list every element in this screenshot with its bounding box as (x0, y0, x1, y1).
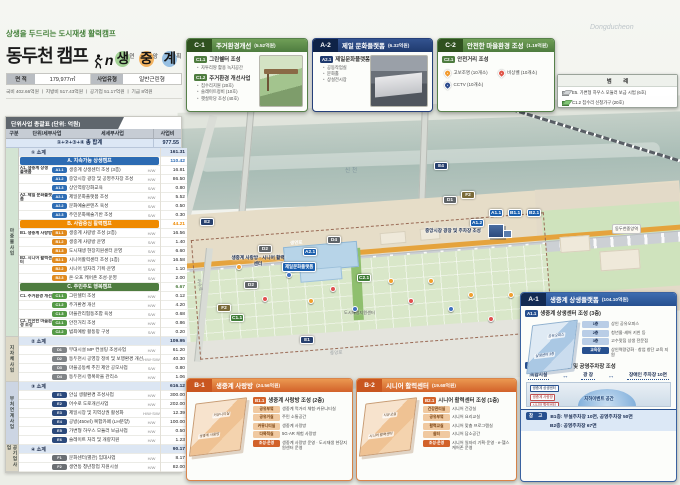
a1-amount: (104.10억원) (602, 296, 629, 303)
b1-body: 생중계 사랑방 커뮤니티실 B1.1생중계 사랑방 조성 (2층) 공유부엌 생… (187, 392, 352, 452)
row-text: 생중계 상생센터 조성 (3층) (69, 167, 143, 173)
a2-amount: (6.32억원) (388, 42, 409, 49)
a1-body: 상생센터 3층 공유오피스 1층 상인 공유오피스 2층 청년몰·셰어 키친 등 (521, 319, 676, 359)
row-text: ③ 소계 (19, 383, 160, 390)
culture-platform-photo (370, 55, 428, 107)
a1-plaza-strip: 복합시설 ↔ 광 장 ↔ 장애인 주차장 10면 (528, 372, 669, 380)
poi-pin-icon (448, 306, 454, 312)
poi-pin-icon (428, 278, 434, 284)
row-hw-sw: H/W (143, 375, 160, 380)
map-label: 동두천중앙역 (612, 224, 641, 234)
b2-sub1: B2.1시니어 활력센터 조성 (1층) (423, 396, 508, 404)
unit-project-table: 단위사업 총괄표 (단위: 억원) 구분 단위/세부사업 세세부사업 사업비 ①… (5, 116, 182, 473)
b2-title: 시니어 활력센터(19.68억원) (382, 379, 516, 392)
room-desc: 5G·AR 체험 사랑방 (282, 431, 348, 436)
safety-facility-label: 고보조명 (10개소) (454, 70, 488, 76)
row-cost: 2.00 (160, 274, 187, 283)
floor-badge: 3층 (582, 338, 609, 345)
map-pin-icon (443, 81, 452, 90)
room-badge: 조성·운영 (423, 440, 450, 447)
poi-pin-icon (330, 286, 336, 292)
b2-body: 시니어 활력센터 치유교실 B2.1시니어 활력센터 조성 (1층) 건강관리실… (357, 392, 516, 452)
c1-sub2-bullets: 집수리지원 (20호)슬레이트정비 (10호)햇살마당 조성 (40호) (190, 83, 258, 102)
map-label: 제일문화플랫폼 (282, 262, 316, 272)
a2-title-text: 제일 문화플랫폼 (342, 41, 385, 50)
row-text: 상인역량강화교육 (69, 185, 143, 191)
a1-title: 생중계 상생플랫폼(104.10억원) (546, 293, 676, 306)
row-badge: E5 (52, 428, 67, 434)
table-rows: ① 소계 161.31 A. 지속가능 상생캠프 110.42 A1. 생중 (19, 148, 187, 472)
row-text: 제일시장 및 지역상권 활성화 (69, 410, 143, 416)
row-cost: 0.68 (160, 310, 187, 319)
floor-row: 2층 청년몰·셰어 키친 등 (582, 330, 669, 337)
row-text: 생중계 사랑방 조성 (2층) (69, 230, 143, 236)
c2-title: 안전한 마을환경 조성(1.19억원) (463, 39, 554, 52)
side-group-label: 지자체사업 (6, 337, 18, 382)
row-cost: 40.30 (160, 355, 187, 364)
room-desc: 시니어 건강실 (452, 406, 512, 411)
arrow-icon: ↔ (608, 373, 615, 380)
row-hw-sw: H/W (143, 303, 160, 308)
row-hw-sw: H/W (143, 177, 160, 182)
area-label: 면 적 (7, 74, 35, 84)
row-cost: 82.00 (160, 463, 187, 472)
c2-header: C-2 안전한 마을환경 조성(1.19억원) (438, 39, 554, 52)
row-cost: 0.50 (160, 202, 187, 211)
render-chips: 생중계 상생센터 생중계 사랑방 시니어 활력센터 (530, 385, 559, 407)
note-text: B1층: 부설주차장 10면, 공영주차장 50면 (550, 413, 632, 420)
row-cost: 16.81 (160, 166, 187, 175)
c2-sub1: C2.1안전거리 조성 (442, 55, 550, 63)
map-marker: B2.1 (527, 209, 541, 217)
tagline: 상생을 두드리는 도시재생 활력캠프 (6, 28, 182, 39)
green-shelter-render-image (259, 55, 303, 107)
bullet: 자투리땅 활용 녹지공간 (201, 65, 258, 71)
sangseang-center-building-icon (488, 224, 504, 238)
b1-sub1: B1.1생중계 사랑방 조성 (2층) (253, 396, 344, 404)
row-cost: 0.30 (160, 211, 187, 220)
a1-note-2: B2층: 공영주차장 67면 (521, 422, 676, 431)
row-text: A. 지속가능 상생캠프 (20, 157, 159, 165)
row-cost: 90.17 (160, 445, 187, 454)
callout-c2-safe-environment: C-2 안전한 마을환경 조성(1.19억원) C2.1안전거리 조성 고보조명… (437, 38, 555, 112)
row-badge: E4 (52, 419, 67, 425)
floor-row: 1층 상인 공유오피스 (582, 321, 669, 328)
b1-plan-zone: 생중계 사랑방 커뮤니티실 (187, 392, 253, 452)
row-badge: F2 (52, 464, 67, 470)
room-badge: 쉼터 (423, 431, 450, 438)
row-text: 생연동 청년창업 지원시설 (69, 464, 143, 470)
map-marker: C2.1 (357, 274, 371, 282)
row-cost: 100.00 (160, 418, 187, 427)
a1-sub1-title: 생중계 상생센터 조성 (3층) (540, 309, 601, 317)
map-marker: E1 (300, 336, 314, 344)
floor-badge: 1층 (582, 321, 609, 328)
row-hw-sw: H/W (143, 420, 160, 425)
type-value: 일반근린형 (123, 74, 181, 84)
row-hw-sw: H/W (143, 465, 160, 470)
row-cost: 1.10 (160, 265, 187, 274)
map-marker: E2 (200, 218, 214, 226)
row-badge: B2.3 (52, 275, 67, 281)
bullet: 햇살마당 조성 (40호) (201, 96, 258, 102)
poi-pin-icon (308, 298, 314, 304)
row-text: 그린쉘터 조성 (69, 293, 143, 299)
b1-title-text: 생중계 사랑방 (216, 381, 253, 390)
floor-desc: 청년몰·셰어 키친 등 (611, 330, 669, 335)
runner-icon (92, 54, 103, 69)
b2-plan-zone: 시니어 활력센터 치유교실 (357, 392, 423, 452)
table-total-row: ①+②+③+④ 총 합계 977.55 (6, 139, 181, 148)
side-group-label: 부처연계사업 (6, 382, 18, 445)
a2-title: 제일 문화플랫폼(6.32억원) (338, 39, 432, 52)
row-cost: 110.42 (160, 157, 187, 166)
b2-code-badge: B-2 (357, 379, 382, 392)
map-marker: D1 (443, 196, 457, 204)
row-hw-sw: H/W (143, 438, 160, 443)
row-badge: C1.2 (52, 302, 67, 308)
b1-room-list: 공유부엌 생중계 먹거리 체험·커뮤니티실 공유거실 주민 소통공간 커뮤니티실… (253, 406, 348, 451)
row-group: C2. 안전한 마을환경 조성 (19, 319, 52, 328)
strip-item: 광 장 (581, 372, 595, 380)
room-row: 조성·운영 생중계 사랑방 운영 · 도시재생 현장지원센터 운영 (253, 440, 348, 451)
table-body: 마중물사업 지자체사업 부처연계사업 공기업사업 ① 소계 161.31 (6, 148, 181, 472)
b1-detail: B1.1생중계 사랑방 조성 (2층) 공유부엌 생중계 먹거리 체험·커뮤니티… (253, 392, 352, 452)
map-legend: 범 례 E5. 가변형 하우스 모듈러 보급 시범 (6호) C1.2 집수리 … (557, 74, 678, 108)
row-hw-sw: S/W (143, 312, 160, 317)
floor-badge: 2층 (582, 330, 609, 337)
title-accent-char: 생연 (115, 51, 130, 67)
poi-pin-icon (286, 272, 292, 278)
room-badge: 공유부엌 (423, 414, 450, 421)
callout-b2-senior-center: B-2 시니어 활력센터(19.68억원) 시니어 활력센터 치유교실 B2.1… (356, 378, 517, 481)
legend-item-label: E5. 가변형 하우스 모듈러 보급 시범 (6호) (572, 90, 646, 96)
map-marker: F2 (217, 304, 231, 312)
map-pin-icon (496, 68, 505, 77)
safety-facility-item: 고보조명 (10개소) (444, 70, 494, 77)
callout-c1-housing: C-1 주거환경개선(5.52억원) C1.1그린쉘터 조성 자투리땅 활용 녹… (186, 38, 308, 112)
room-row: 다목적실 5G·AR 체험 사랑방 (253, 431, 348, 438)
floor-desc: 상인역량강화 · 창업 창단 교육 지원 (611, 347, 669, 358)
c1-sub2-badge: C1.2 (194, 74, 207, 81)
row-text: ④ 소계 (19, 446, 160, 453)
room-row: 공유부엌 시니어 요리교실 (423, 414, 512, 421)
c2-code-badge: C-2 (438, 39, 463, 52)
a1-sub1: A1.1생중계 상생센터 조성 (3층) (525, 309, 672, 317)
row-hw-sw: S/W (143, 267, 160, 272)
row-hw-sw: S/W (143, 249, 160, 254)
row-text: B. 사람중심 활력캠프 (20, 220, 159, 228)
row-cost: 1.06 (160, 373, 187, 382)
room-desc: 주민 소통공간 (282, 414, 348, 419)
row-text: 어수로 도로개선사업 (69, 401, 143, 407)
b2-floor-plan: 시니어 활력센터 치유교실 (359, 397, 417, 457)
row-text: ① 소계 (19, 149, 160, 156)
map-shape-block (599, 249, 640, 272)
map-marker: D2 (258, 245, 272, 253)
row-cost: 0.80 (160, 364, 187, 373)
row-hw-sw: H/W (143, 294, 160, 299)
legend-item: E5. 가변형 하우스 모듈러 보급 시범 (6호) (558, 87, 677, 97)
row-cost: 86.50 (160, 175, 187, 184)
legend-items: E5. 가변형 하우스 모듈러 보급 시범 (6호) C1.2 집수리 신청가구… (558, 87, 677, 107)
logo-n: n (105, 52, 114, 68)
c2-sub1-badge: C2.1 (442, 56, 455, 63)
row-cost: 202.00 (160, 400, 187, 409)
c1-sub1-badge: C1.1 (194, 56, 207, 63)
c1-sub2-title: 주거환경 개선사업 (209, 74, 250, 82)
c2-sub1-title: 안전거리 조성 (457, 55, 488, 63)
building-icon (503, 230, 512, 238)
row-cost: 5.52 (160, 193, 187, 202)
row-cost: 4.20 (160, 301, 187, 310)
a2-bullets: 공동작업실문화홀상설전시장 (316, 65, 369, 84)
row-badge: A1.3 (52, 185, 67, 191)
floor-desc: 상인 공유오피스 (611, 321, 669, 326)
row-text: 안전거리 조성 (69, 320, 143, 326)
row-cost: 44.21 (160, 220, 187, 229)
table-column-header: 구분 단위/세부사업 세세부사업 사업비 (6, 129, 181, 139)
table-title: 단위사업 총괄표 (단위: 억원) (6, 117, 124, 129)
cube-icon (562, 101, 569, 106)
poi-pin-icon (388, 278, 394, 284)
poi-pin-icon (352, 306, 358, 312)
plan-room-label: 공유오피스 (547, 332, 566, 339)
room-desc: 시니어 일자리 기획·운영 · e-헬스케어존 운영 (452, 440, 512, 451)
poi-pin-icon (262, 296, 268, 302)
title-accent-chars: 생연 중앙 계획 (115, 50, 181, 68)
row-hw-sw: H/W (143, 231, 160, 236)
a1-note-1: 참 고 B1층: 부설주차장 10면, 공영주차장 50면 (521, 409, 676, 422)
col-unit-project: 단위/세부사업 (22, 129, 72, 138)
b2-room-list: 건강관리실 시니어 건강실 공유부엌 시니어 요리교실 활력교실 시니어 맞춤 … (423, 406, 512, 451)
b1-floor-plan: 생중계 사랑방 커뮤니티실 (189, 397, 247, 457)
row-group: B1. 생중계 사랑방 (19, 231, 52, 235)
bullet: 상설전시장 (327, 77, 369, 83)
row-cost: 0.86 (160, 319, 187, 328)
title-row: 동두천 캠프 n 생연 중앙 계획 (6, 42, 182, 68)
map-marker: B1.1 (508, 209, 522, 217)
room-badge: 건강관리실 (423, 406, 450, 413)
map-marker: A1.1 (489, 209, 503, 217)
row-hw-sw: H/W (143, 402, 160, 407)
row-badge: E3 (52, 410, 67, 416)
a2-sub1-badge: A2.1 (320, 56, 333, 63)
safety-facility-label: CCTV (10개소) (454, 82, 484, 88)
room-badge: 활력교실 (423, 423, 450, 430)
floor-row: 3층 고수맛집 상생 전문점 (582, 338, 669, 345)
row-text: 주거환경 개선 (69, 302, 143, 308)
note-text: B2층: 공영주차장 67면 (550, 422, 597, 429)
room-desc: 생중계 사랑방 (282, 423, 348, 428)
poi-pin-icon (408, 298, 414, 304)
row-badge: A1.2 (52, 176, 67, 182)
map-marker: D2 (244, 281, 258, 289)
b2-sub1-title: 시니어 활력센터 조성 (1층) (438, 396, 499, 404)
row-badge: B1.2 (52, 239, 67, 245)
row-cost: 16.58 (160, 256, 187, 265)
render-chip-label: 시니어 활력센터 (530, 402, 559, 407)
room-badge: 공유거실 (253, 414, 280, 421)
row-text: 마을관리협동조합 육성 (69, 311, 143, 317)
map-marker: F2 (461, 191, 475, 199)
row-badge: A2.2 (52, 203, 67, 209)
b2-title-text: 시니어 활력센터 (386, 381, 429, 390)
row-text: 제일문화플랫폼 조성 (69, 194, 143, 200)
floor-badge: 교육장 (582, 347, 609, 354)
map-label: 도시재생지원센터 (344, 310, 375, 316)
a1-code-badge: A-1 (521, 293, 546, 306)
col-sub-project: 세세부사업 (72, 129, 153, 138)
row-hw-sw: S/W (143, 276, 160, 281)
row-hw-sw: H/W (143, 429, 160, 434)
row-badge: C1.3 (52, 311, 67, 317)
row-hw-sw: H/W (143, 456, 160, 461)
callout-a1-sangseang-platform: A-1 생중계 상생플랫폼(104.10억원) A1.1생중계 상생센터 조성 … (520, 292, 677, 482)
row-badge: E6 (52, 437, 67, 443)
row-badge: B2.1 (52, 257, 67, 263)
side-group-label: 공기업사업 (6, 445, 18, 472)
plan-room-label: 상생센터 3층 (534, 351, 556, 359)
row-cost: 8.17 (160, 454, 187, 463)
row-text: 공방(450㎡) 복합카페 (LH분양) (69, 419, 143, 425)
row-badge: D2 (52, 356, 67, 362)
row-badge: D1 (52, 347, 67, 353)
room-row: 건강관리실 시니어 건강실 (423, 406, 512, 413)
room-badge: 공유부엌 (253, 406, 280, 413)
row-badge: D4 (52, 374, 67, 380)
room-row: 공유거실 주민 소통공간 (253, 414, 348, 421)
a1-sub1-badge: A1.1 (525, 310, 538, 317)
c2-title-text: 안전한 마을환경 조성 (467, 41, 523, 50)
room-row: 공유부엌 생중계 먹거리 체험·커뮤니티실 (253, 406, 348, 413)
map-label: 중앙로 (330, 350, 343, 357)
map-marker: E4 (434, 162, 448, 170)
b1-sub1-badge: B1.1 (253, 397, 266, 404)
row-badge: E2 (52, 401, 67, 407)
row-group: C1. 주거환경 개선 (19, 294, 52, 298)
row-cost: 61.20 (160, 346, 187, 355)
c2-pin-list: 고보조명 (10개소) 비상벨 (10개소) CCTV (10개소) (438, 65, 554, 94)
row-cost: 6.67 (160, 283, 187, 292)
room-badge: 다목적실 (253, 431, 280, 438)
a2-code-badge: A-2 (313, 39, 338, 52)
b1-amount: (24.56억원) (256, 382, 280, 389)
c2-amount: (1.19억원) (526, 42, 547, 49)
a1-section-render: 지하이벤트 공간 생중계 상생센터 생중계 사랑방 시니어 활력센터 (526, 382, 671, 407)
row-cost: 300.00 (160, 391, 187, 400)
b1-header: B-1 생중계 사랑방(24.56억원) (187, 379, 352, 392)
row-text: 범죄예방 활동망 구성 (69, 329, 143, 335)
room-row: 커뮤니티실 생중계 사랑방 (253, 423, 348, 430)
row-text: 도시재생 현장지원센터 운영 (69, 248, 143, 254)
row-cost: 1.40 (160, 238, 187, 247)
row-hw-sw: H/W (143, 168, 160, 173)
c1-content: C1.1그린쉘터 조성 자투리땅 활용 녹지공간 C1.2주거환경 개선사업 집… (190, 52, 258, 110)
row-group: A2. 제일 문화플랫폼 (19, 193, 52, 202)
table-side-groups: 마중물사업 지자체사업 부처연계사업 공기업사업 (6, 148, 19, 472)
row-hw-sw: S/W (143, 330, 160, 335)
floor-desc: 고수맛집 상생 전문점 (611, 338, 669, 343)
map-marker: A1.2 (470, 219, 484, 227)
map-marker: C1.1 (230, 314, 244, 322)
arrow-icon: ↔ (562, 373, 569, 380)
map-pin-icon (443, 68, 452, 77)
plan-room-label: 생중계 사랑방 (198, 432, 221, 440)
side-group-label: 마중물사업 (6, 148, 18, 337)
type-label: 사업유형 (91, 74, 123, 84)
row-hw-sw: S/W (143, 240, 160, 245)
c1-title-text: 주거환경개선 (216, 41, 251, 50)
callout-b1-sarangbang: B-1 생중계 사랑방(24.56억원) 생중계 사랑방 커뮤니티실 B1.1생… (186, 378, 353, 481)
row-text: 가변형 하우스 모듈러 보급사업 (69, 428, 143, 434)
row-cost: 616.12 (160, 382, 187, 391)
row-badge: F1 (52, 455, 67, 461)
row-text: 시니어활력센터 조성 (1층) (69, 257, 143, 263)
info-bar: 면 적 179,977㎡ 사업유형 일반근린형 (6, 73, 182, 85)
safety-facility-item: 비상벨 (10개소) (498, 70, 548, 77)
row-hw-sw: H/W (143, 258, 160, 263)
cube-icon (562, 91, 569, 96)
room-row: 쉼터 시니어 담소공간 (423, 431, 512, 438)
row-text: 문화예술콘텐츠 육성 (69, 203, 143, 209)
a1-floor-list: 1층 상인 공유오피스 2층 청년몰·셰어 키친 등 3층 고수맛집 상생 전문… (582, 319, 673, 359)
row-text: ② 소계 (19, 338, 160, 345)
dome-label: 지하이벤트 공간 (584, 396, 614, 402)
poi-pin-icon (468, 292, 474, 298)
poi-pin-icon (488, 316, 494, 322)
row-text: 생중계 사랑방 운영 (69, 239, 143, 245)
safety-facility-label: 비상벨 (10개소) (507, 70, 537, 76)
title-accent-char: 중앙 (139, 51, 154, 67)
c1-header: C-1 주거환경개선(5.52억원) (187, 39, 307, 52)
row-badge: C1.1 (52, 293, 67, 299)
row-text: 주민문화예술기반 조성 (69, 212, 143, 218)
b2-detail: B2.1시니어 활력센터 조성 (1층) 건강관리실 시니어 건강실 공유부엌 … (423, 392, 516, 452)
a1-header: A-1 생중계 상생플랫폼(104.10억원) (521, 293, 676, 306)
row-cost: 0.50 (160, 427, 187, 436)
map-label: 중앙시장 광장 및 주차장 조성 (424, 228, 482, 234)
callout-a2-culture-platform: A-2 제일 문화플랫폼(6.32억원) A2.1제일문화플랫폼 조성 공동작업… (312, 38, 433, 112)
row-text: 마을공동체 추진 제안 공모사업 (69, 365, 143, 371)
row-text: 동두천시 행복마을 관리소 (69, 374, 143, 380)
a2-header: A-2 제일 문화플랫폼(6.32억원) (313, 39, 432, 52)
title-accent-char: 계획 (162, 51, 177, 67)
map-label: 생연로 (290, 240, 303, 247)
row-hw-sw: H/W (143, 348, 160, 353)
row-cost: 161.31 (160, 148, 187, 157)
col-gubun: 구분 (6, 129, 22, 138)
c1-sub2: C1.2주거환경 개선사업 (194, 74, 254, 82)
row-hw-sw: H/W (143, 195, 160, 200)
c1-amount: (5.52억원) (254, 42, 275, 49)
row-cost: 109.95 (160, 337, 187, 346)
room-desc: 시니어 담소공간 (452, 431, 512, 436)
a2-sub1: A2.1제일문화플랫폼 조성 (320, 55, 365, 63)
page-title: 동두천 캠프 (6, 42, 88, 68)
row-text: 온·오프 케어존 조성·운영 (69, 275, 143, 281)
plan-room-label: 치유교실 (382, 412, 397, 419)
row-text: C. 주민주도 행복캠프 (20, 283, 159, 291)
row-group: B2. 시니어 활력센터 (19, 256, 52, 265)
render-chip-label: 생중계 사랑방 (530, 394, 555, 401)
map-marker: D4 (327, 236, 341, 244)
area-value: 179,977㎡ (35, 74, 91, 84)
row-hw-sw: S/W (143, 204, 160, 209)
row-badge: B2.2 (52, 266, 67, 272)
row-text: 슬레이트 처리 및 개량지원 (69, 437, 143, 443)
row-badge: D3 (52, 365, 67, 371)
